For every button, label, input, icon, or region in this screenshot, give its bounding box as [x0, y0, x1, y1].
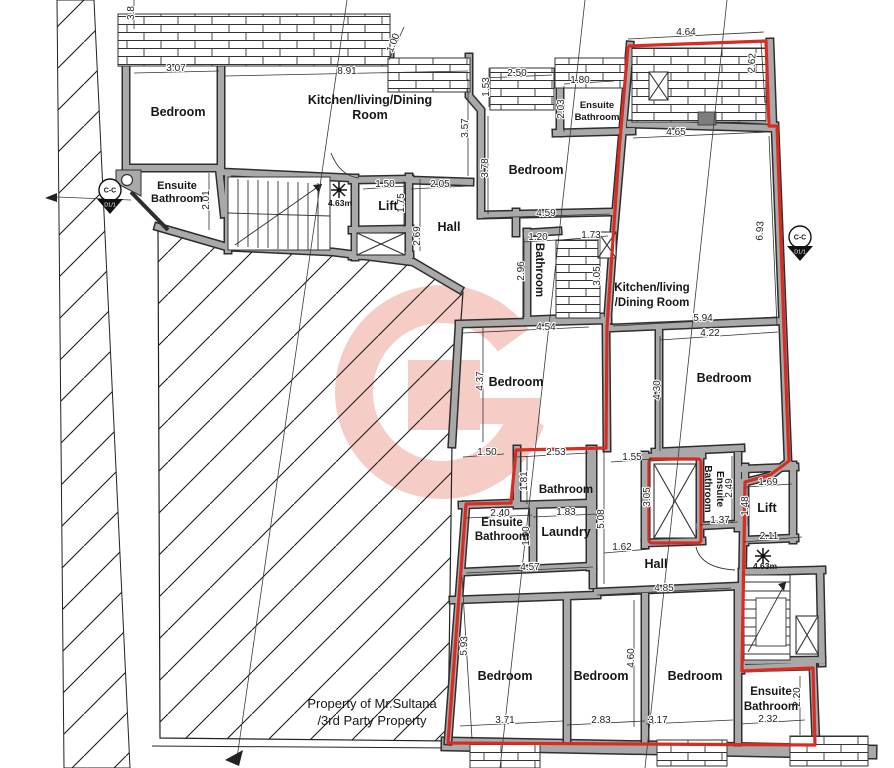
dimension-label: 6.93	[755, 220, 767, 240]
annotation-area-2: 4.63m	[753, 561, 778, 571]
dimension-label: 2.96	[516, 261, 527, 281]
dimension-label: 3.17	[648, 715, 668, 726]
room-label-ensuite-3-line1: Ensuite	[481, 517, 523, 529]
dimension-label: 2.05	[430, 179, 450, 190]
section-marker-code: D1/1	[104, 203, 116, 209]
compass-star-1	[331, 182, 347, 198]
door-threshold	[698, 112, 716, 125]
door-arc-2	[696, 547, 735, 570]
room-label-bathroom-1: Bathroom	[533, 243, 545, 297]
section-marker-code: D1/1	[794, 250, 806, 256]
annotation-area-1: 4.63m	[328, 198, 353, 208]
room-label-ensuite-4-line1: Ensuite	[714, 471, 725, 508]
dimension-label: 5.94	[693, 313, 713, 324]
dimension-label: 1.80	[570, 75, 590, 86]
dimension-label: 1.73	[581, 230, 601, 241]
dimension-label: 3.07	[166, 63, 186, 74]
dimension-label: 4.65	[666, 127, 686, 138]
staircase-bottom-right	[744, 575, 790, 660]
dimension-label: 1.50	[477, 447, 497, 458]
section-marker-label: C-C	[104, 188, 116, 195]
dimension-label: 3.8	[126, 6, 137, 20]
dimension-label: 1.20	[528, 232, 548, 243]
third-party-yard-hatch	[158, 228, 463, 741]
floor-plan-canvas: 3.078.912.501.804.642.624.651.001.532.03…	[0, 0, 894, 768]
room-label-ensuite-2-line2: Bathroom	[575, 112, 620, 123]
neighbour-wall-hatch	[57, 0, 130, 768]
dimension-label: 1.53	[481, 77, 492, 97]
section-arrow-bottom	[225, 750, 243, 766]
room-label-ensuite-5-line1: Ensuite	[750, 686, 792, 698]
room-label-lift-1: Lift	[378, 199, 398, 213]
dimension-label: 1.69	[758, 477, 778, 488]
dimension-label: 2.03	[556, 99, 567, 119]
door-pivot	[122, 175, 133, 186]
section-marker-label: C-C	[794, 235, 806, 242]
dimension-label: 1.81	[519, 471, 530, 491]
room-label-lift-2: Lift	[757, 501, 777, 515]
room-label-ensuite-1-line1: Ensuite	[157, 180, 197, 192]
dimension-label: 4.22	[700, 328, 720, 339]
room-label-hall-2: Hall	[645, 557, 668, 571]
room-label-ensuite-2-line1: Ensuite	[580, 100, 614, 111]
room-label-bedroom-4: Bedroom	[697, 371, 752, 385]
yard-bottom-double-line	[152, 746, 450, 748]
room-label-laundry: Laundry	[541, 525, 590, 539]
dimension-label: 4.60	[626, 648, 637, 668]
dimension-label: 1.48	[740, 496, 751, 516]
dimension-label: 1.62	[612, 542, 632, 553]
dimension-label: 4.57	[520, 562, 540, 573]
room-label-kitchen-2-line2: /Dining Room	[615, 297, 690, 309]
dimension-label: 8.91	[337, 66, 357, 77]
dimension-label: 2.32	[758, 714, 778, 725]
room-label-hall-1: Hall	[438, 220, 461, 234]
dimension-label: 2.11	[760, 531, 779, 542]
dimension-line	[628, 32, 764, 39]
dimension-label: 1.83	[556, 507, 576, 518]
dimension-label: 5.93	[459, 636, 471, 656]
dimension-label: 4.54	[536, 322, 556, 333]
room-label-ensuite-1-line2: Bathroom	[151, 193, 203, 205]
dimension-label: 2.50	[507, 68, 527, 79]
dimension-label: 3.78	[480, 158, 491, 178]
dimension-label: 3.71	[495, 715, 515, 726]
dimension-label: 5.08	[596, 509, 607, 529]
room-label-bedroom-6: Bedroom	[574, 669, 629, 683]
room-label-kitchen-2-line1: Kitchen/living	[614, 282, 689, 294]
room-label-ensuite-3-line2: Bathroom	[475, 531, 529, 543]
note-property-line1: Property of Mr.Sultana	[307, 696, 437, 711]
dimension-label: 1.50	[375, 179, 395, 190]
dimension-label: 3.05	[592, 266, 603, 286]
staircase-top-left	[228, 177, 330, 250]
dimension-line	[633, 132, 767, 138]
room-label-bedroom-3: Bedroom	[489, 375, 544, 389]
room-label-kitchen-1-line1: Kitchen/living/Dining	[308, 93, 432, 107]
room-label-bedroom-1: Bedroom	[151, 105, 206, 119]
room-label-bathroom-2: Bathroom	[539, 484, 593, 496]
dimension-label: 1.55	[622, 452, 642, 463]
dimension-label: 4.30	[652, 380, 663, 400]
room-label-kitchen-1-line2: Room	[352, 108, 387, 122]
dimension-label: 2.83	[591, 715, 611, 726]
dimension-label: 2.69	[412, 226, 423, 246]
dimension-label: 2.62	[747, 52, 759, 72]
dimension-label: 4.37	[475, 371, 486, 391]
note-property-line2: /3rd Party Property	[317, 713, 427, 728]
dimension-label: 3.05	[642, 487, 653, 507]
dimension-label: 3.57	[460, 118, 471, 138]
room-label-ensuite-4-line2: Bathroom	[702, 465, 713, 512]
dimension-label: 2.53	[546, 447, 566, 458]
room-label-bedroom-7: Bedroom	[668, 669, 723, 683]
dimension-label: 1.37	[710, 515, 730, 526]
dimension-label: 4.85	[654, 583, 674, 594]
section-arrow-left	[45, 193, 57, 202]
dimension-label: 4.64	[676, 27, 696, 38]
room-label-ensuite-5-line2: Bathroom	[744, 701, 798, 713]
room-label-bedroom-5: Bedroom	[478, 669, 533, 683]
room-label-bedroom-2: Bedroom	[509, 163, 564, 177]
dimension-label: 4.59	[536, 208, 556, 219]
